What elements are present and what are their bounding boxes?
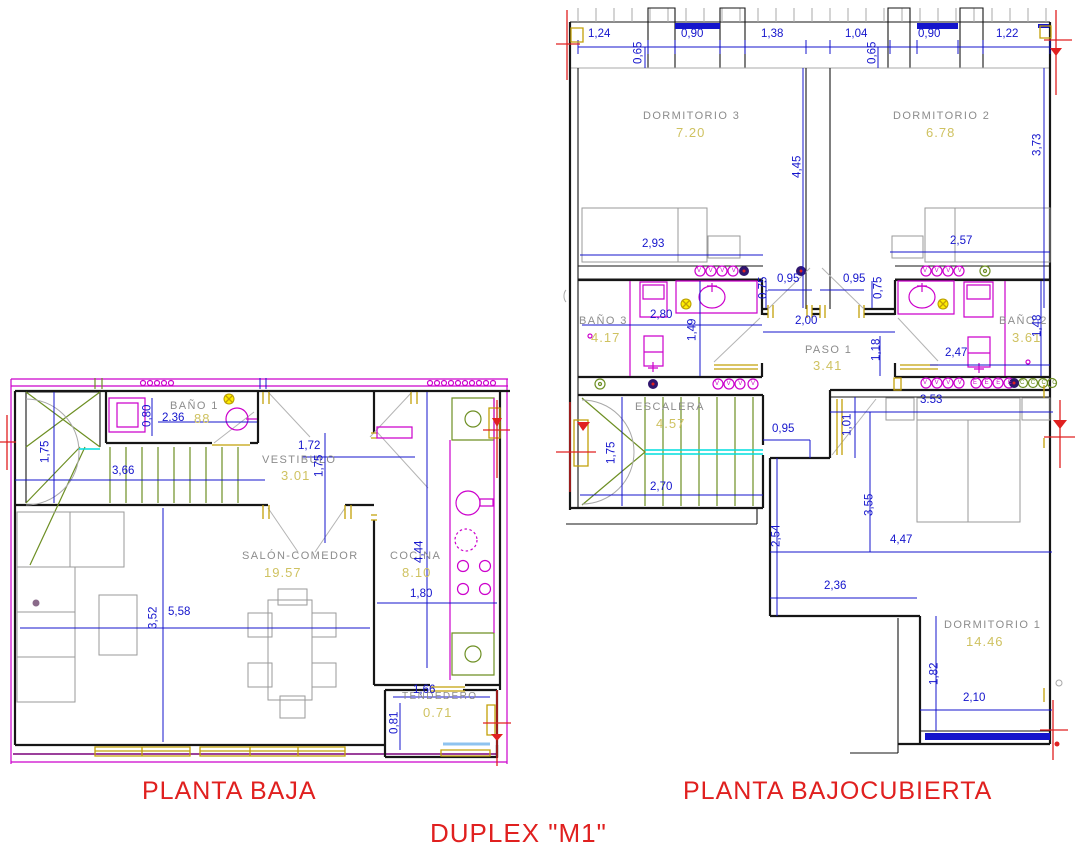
dim-top-3: 0,90 [681, 29, 703, 41]
dim-dorm1-bottom-width: 2,10 [963, 693, 985, 705]
room-label-escalera: ESCALERA [635, 402, 705, 413]
dim-top-2: 0,65 [633, 32, 645, 74]
room-label-salon: SALÓN-COMEDOR [242, 551, 359, 562]
dim-dorm1-left-height: 2,54 [771, 515, 783, 557]
dim-cocina-height: 4,44 [414, 531, 426, 573]
area-dormitorio2: 6.78 [926, 126, 955, 139]
caption-planta-bajocubierta: PLANTA BAJOCUBIERTA [683, 779, 992, 804]
dim-vestibulo-height: 1,75 [314, 445, 326, 487]
kitchen-appliances [452, 398, 494, 675]
room-label-dormitorio1: DORMITORIO 1 [944, 620, 1041, 631]
dim-dorm3-width: 2,93 [642, 239, 664, 251]
caption-planta-baja: PLANTA BAJA [142, 779, 317, 804]
area-salon: 19.57 [264, 566, 302, 579]
dim-cocina-width: 1,80 [410, 589, 432, 601]
dim-tendedero-height: 0,81 [389, 702, 401, 744]
symbol-row2-v: VVVV [923, 268, 969, 274]
dim-top-7: 0,90 [918, 29, 940, 41]
symbol-row4-e: EEEE [973, 380, 1019, 386]
area-vestibulo: 3.01 [281, 469, 310, 482]
dim-dorm1-top: 3.53 [920, 395, 942, 407]
dim-paso-width: 2,00 [795, 316, 817, 328]
dim-door2: 0,95 [843, 274, 865, 286]
area-tendedero: 0.71 [423, 706, 452, 719]
symbol-row3-v1: V [751, 381, 763, 387]
dim-top-6: 0,65 [867, 32, 879, 74]
room-label-dormitorio3: DORMITORIO 3 [643, 111, 740, 122]
dim-dorm2-width: 2,57 [950, 236, 972, 248]
symbol-row4-v: VVVV [923, 380, 969, 386]
dim-salon-width: 5,58 [168, 607, 190, 619]
drawing-title: DUPLEX "M1" [430, 820, 607, 846]
dim-dorm1-notch: 1,01 [842, 404, 854, 446]
dim-dorm1-width: 4,47 [890, 535, 912, 547]
dim-top-4: 1,38 [761, 29, 783, 41]
dim-escalera-height: 1,75 [606, 432, 618, 474]
dim-stair-width: 3,66 [112, 466, 134, 478]
dim-banio2-height: 1,48 [1032, 305, 1044, 347]
dim-landing-width: 0,95 [772, 424, 794, 436]
bathroom2-fixtures [898, 281, 1030, 376]
dim-top-1: 1,24 [588, 29, 610, 41]
dim-dorm2-height: 3,73 [1032, 124, 1044, 166]
dim-door3-jamb: 0,75 [758, 267, 770, 309]
dim-door3: 0,95 [777, 274, 799, 286]
floor-plan-drawing [0, 0, 1081, 859]
area-banio3: 4.17 [591, 331, 620, 344]
area-paso1: 3.41 [813, 359, 842, 372]
symbol-row4-c: CCCC [1020, 380, 1063, 386]
room-label-paso1: PASO 1 [805, 345, 852, 356]
dim-door2-jamb: 0,75 [873, 267, 885, 309]
dim-top-5: 1,04 [845, 29, 867, 41]
dim-banio1-width: 2.36 [162, 413, 184, 425]
dim-stair-height: 1,75 [40, 431, 52, 473]
symbol-row1-v: VVVV [697, 268, 743, 274]
dim-dorm1-mid-height: 3,55 [864, 484, 876, 526]
dim-top-8: 1,22 [996, 29, 1018, 41]
dim-banio2-width: 2,47 [945, 348, 967, 360]
wall-scallops [141, 381, 496, 386]
dim-dorm1-bottom-height: 1,82 [929, 653, 941, 695]
dim-dorm1-lower-width: 2,36 [824, 581, 846, 593]
area-banio1: 88 [194, 412, 210, 425]
dim-salon-height: 3,52 [148, 597, 160, 639]
dim-escalera-width: 2,70 [650, 482, 672, 494]
area-dormitorio1: 14.46 [966, 635, 1004, 648]
dim-banio3-height: 1,49 [687, 309, 699, 351]
dim-banio3-width: 2,80 [650, 310, 672, 322]
bathroom3-fixtures [588, 281, 757, 376]
room-label-dormitorio2: DORMITORIO 2 [893, 111, 990, 122]
dim-dorm3-height: 4,45 [792, 146, 804, 188]
floorplan-canvas: BAÑO 1 2.36 88 0,80 1,75 3,66 VESTIBULO … [0, 0, 1081, 859]
room-label-banio3: BAÑO 3 [579, 316, 628, 327]
dim-banio1-height: 0,80 [142, 395, 154, 437]
dim-tendedero-width: 1,66 [413, 685, 435, 697]
area-escalera: 4.57 [656, 417, 685, 430]
dim-paso-height: 1,18 [871, 329, 883, 371]
area-dormitorio3: 7.20 [676, 126, 705, 139]
symbol-row3-v: VVV [715, 381, 750, 387]
